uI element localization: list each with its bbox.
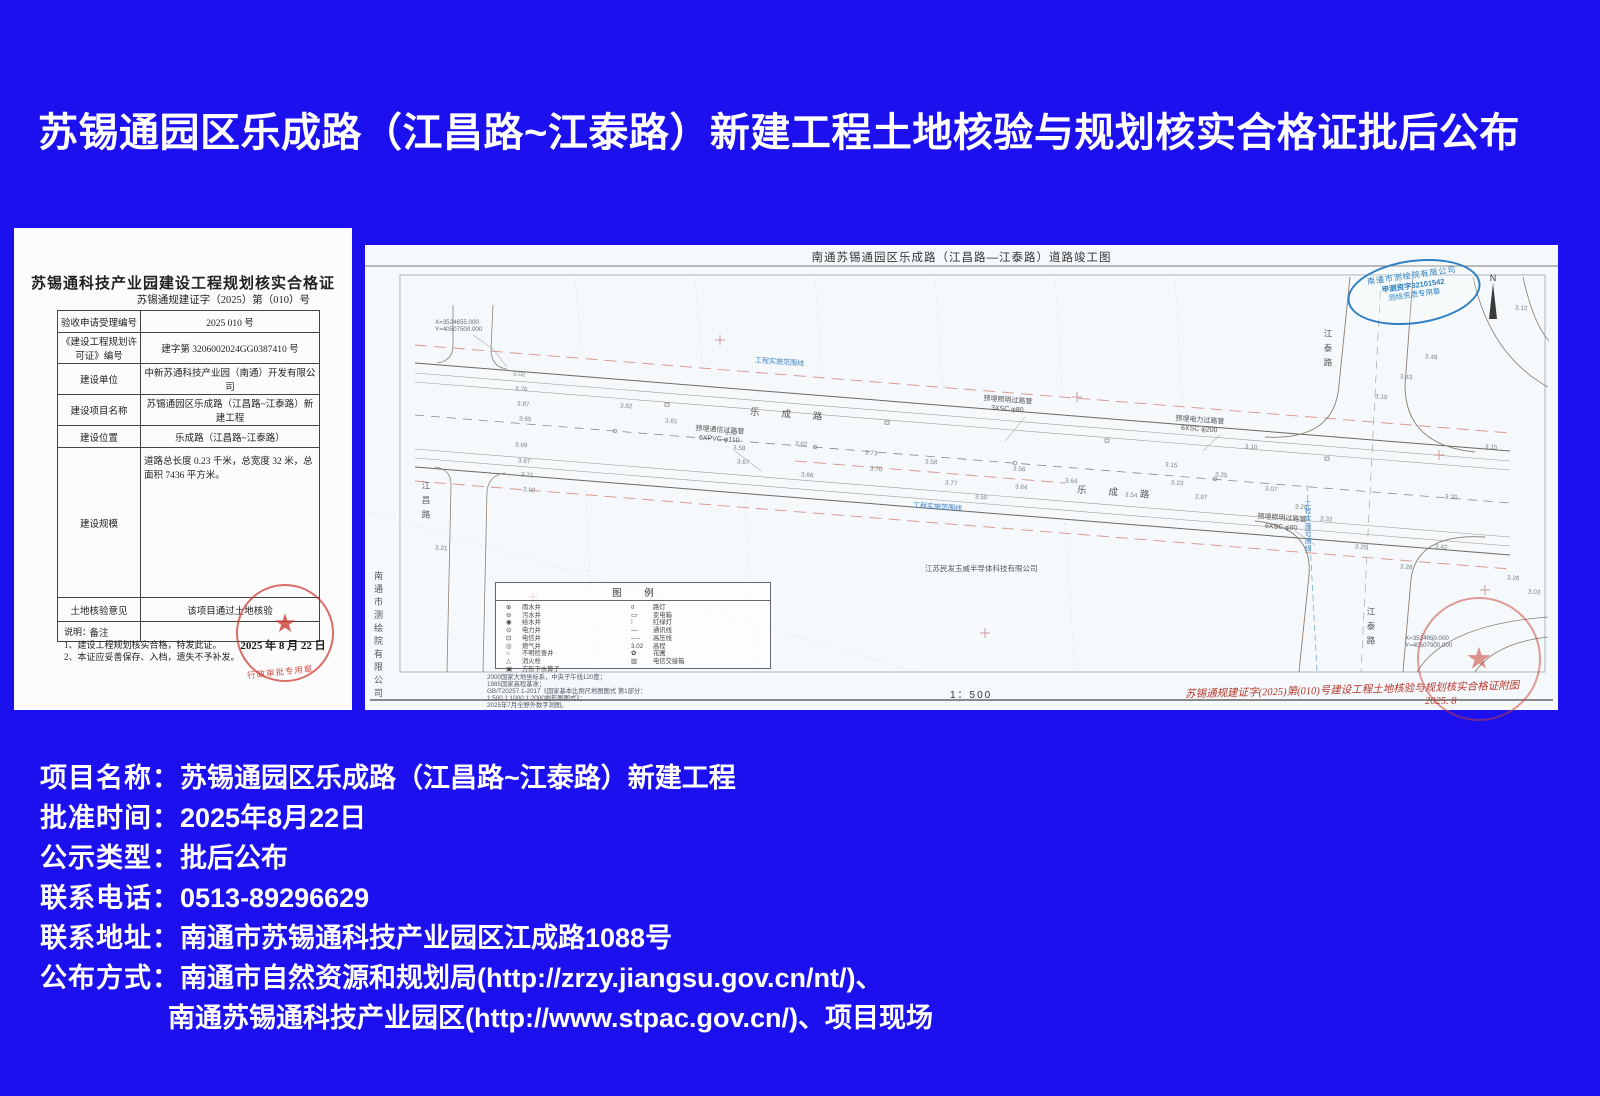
legend-symbol: ○ [506, 650, 522, 658]
announcement-line-label: 批准时间： [40, 803, 180, 833]
spot-elevation: 3.32 [1320, 516, 1333, 524]
legend-symbol [631, 666, 653, 674]
spot-elevation: 3.15 [1485, 444, 1498, 452]
map-legend: 图 例 ⊕雨水井¤路灯⊖污水井▭变电箱◉给水井⁞红绿灯⊙电力井—通讯线⊡电信井–… [495, 582, 771, 669]
announcement-line-label: 公布方式： [40, 963, 180, 993]
spot-elevation: 3.56 [1013, 466, 1026, 474]
announcement-line: 批准时间：2025年8月22日 [40, 798, 933, 838]
road-label-jiangchang: 江昌路 [420, 481, 432, 525]
certificate-row-label: 建设项目名称 [58, 395, 141, 426]
spot-elevation: 3.71 [521, 472, 534, 480]
spot-elevation: 3.65 [519, 416, 532, 424]
announcement-line: 公示类型：批后公布 [40, 838, 933, 878]
certificate-row: 建设项目名称苏锡通园区乐成路（江昌路~江泰路）新建工程 [58, 395, 320, 426]
spot-elevation: 3.19 [1375, 394, 1388, 402]
announcement-line-value: 南通市自然资源和规划局(http://zrzy.jiangsu.gov.cn/n… [180, 963, 882, 993]
certificate-row: 建设单位中新苏通科技产业园（南通）开发有限公司 [58, 364, 320, 395]
legend-symbol: ▭ [631, 612, 653, 620]
spot-elevation: 3.07 [1265, 486, 1278, 494]
legend-item-label: 通讯线 [653, 627, 762, 635]
certificate-title: 苏锡通科技产业园建设工程规划核实合格证 [14, 272, 352, 293]
pipe-label-power: 预埋电力过路管 6XSC φ200 [1174, 415, 1224, 435]
spot-elevation: 3.64 [1065, 478, 1078, 486]
legend-item-label: 给水井 [522, 619, 631, 627]
certificate-notes-title: 说明： [64, 626, 240, 639]
map-red-annotation-date: 2025. 8 [1425, 696, 1457, 707]
certificate-row-label: 土地核验意见 [58, 598, 141, 622]
spot-elevation: 3.23 [1171, 480, 1184, 488]
legend-item-label: 消火栓 [522, 658, 631, 666]
legend-item-label: 不明检查井 [522, 650, 631, 658]
legend-symbol: ▥ [631, 658, 653, 666]
map-scale: 1：500 [950, 686, 992, 701]
legend-symbol: ⊖ [506, 612, 522, 620]
announcement-line-label: 项目名称： [40, 763, 180, 793]
legend-item-label: 电信交接箱 [653, 658, 762, 666]
announcement-line-value: 苏锡通园区乐成路（江昌路~江泰路）新建工程 [180, 763, 736, 793]
certificate-notes: 说明： 1、建设工程规划核实合格，特发此证。2、本证应妥善保存、入档，遗失不予补… [64, 626, 240, 664]
spot-elevation: 3.21 [435, 545, 448, 553]
announcement-line-value: 2025年8月22日 [180, 803, 366, 833]
spot-elevation: 3.02 [513, 371, 526, 379]
spot-elevation: 3.03 [1528, 589, 1541, 597]
road-label-jiangtai-1: 江泰路 [1322, 329, 1334, 373]
spot-elevation: 3.26 [1295, 504, 1308, 512]
certificate-row-label: 验收申请受理编号 [58, 311, 141, 333]
announcement-line: 项目名称：苏锡通园区乐成路（江昌路~江泰路）新建工程 [40, 758, 933, 798]
spot-elevation: 3.25 [1215, 472, 1228, 480]
announcement-line: 南通苏锡通科技产业园区(http://www.stpac.gov.cn/)、项目… [40, 998, 933, 1038]
certificate-row: 验收申请受理编号2025 010 号 [58, 311, 320, 333]
announcement-line-label: 公示类型： [40, 843, 180, 873]
spot-elevation: 3.10 [1245, 444, 1258, 452]
road-label-jiangtai-2: 江泰路 [1365, 607, 1377, 651]
spot-elevation: 3.43 [1400, 374, 1413, 382]
road-completion-map: 南通苏锡通园区乐成路（江昌路—江泰路）道路竣工图 [365, 245, 1558, 710]
announcement-line-label: 联系地址： [40, 923, 180, 953]
legend-symbol: ⁞ [631, 619, 653, 627]
certificate-row-label: 建设规模 [58, 448, 141, 598]
legend-symbol: — [631, 627, 653, 635]
spot-elevation: 3.73 [865, 450, 878, 458]
page-title: 苏锡通园区乐成路（江昌路~江泰路）新建工程土地核验与规划核实合格证批后公布 [38, 100, 1578, 158]
spot-elevation: 3.58 [733, 445, 746, 453]
certificate-row-value: 2025 010 号 [141, 311, 320, 333]
stamp-star-icon: ★ [1466, 642, 1493, 677]
spot-elevation: 3.12 [1515, 305, 1528, 313]
announcement-line: 联系地址：南通市苏锡通科技产业园区江成路1088号 [40, 918, 933, 958]
certificate-row-label: 建设单位 [58, 364, 141, 395]
legend-title: 图 例 [496, 583, 770, 601]
surveyor-company-vertical: 南通市测绘院有限公司 [372, 571, 385, 701]
spot-elevation: 3.67 [737, 459, 750, 467]
legend-item-label: 花圃 [653, 650, 762, 658]
spot-elevation: 3.67 [518, 458, 531, 466]
spot-elevation: 2.97 [1195, 494, 1208, 502]
legend-item-label: 高压线 [653, 635, 762, 643]
spot-elevation: 3.64 [1015, 484, 1028, 492]
spot-elevation: 3.92 [523, 487, 536, 495]
legend-item-label: 电信井 [522, 635, 631, 643]
legend-symbol: ✿ [631, 650, 653, 658]
legend-symbol: 3.02 [631, 643, 653, 651]
pipe-label-lighting-2: 预埋照明过路管 6XSC φ80 [1256, 513, 1306, 533]
certificate-row-value: 道路总长度 0.23 千米，总宽度 32 米，总面积 7436 平方米。 [141, 448, 320, 598]
legend-symbol: –·– [631, 635, 653, 643]
legend-symbol: ⊡ [506, 635, 522, 643]
certificate-row-value: 中新苏通科技产业园（南通）开发有限公司 [141, 364, 320, 395]
map-note-line: 2025年7月全野外数字测图。 [487, 702, 647, 709]
certificate-stamp-date: 2025 年 8 月 22 日 [226, 637, 340, 653]
certificate-doc-number: 苏锡通规建证字（2025）第（010）号 [14, 292, 352, 307]
stamp-star-icon: ★ [273, 609, 296, 639]
legend-symbol: ¤ [631, 604, 653, 612]
announcement-line: 联系电话：0513-89296629 [40, 878, 933, 918]
spot-elevation: 3.15 [1165, 462, 1178, 470]
certificate-panel: 苏锡通科技产业园建设工程规划核实合格证 苏锡通规建证字（2025）第（010）号… [14, 228, 352, 710]
spot-elevation: 3.70 [870, 466, 883, 474]
spot-elevation: 3.26 [1507, 575, 1520, 583]
certificate-row: 《建设工程规划许可证》编号建字第 3206002024GG0387410 号 [58, 333, 320, 364]
spot-elevation: 3.87 [517, 401, 530, 409]
legend-symbol: ◉ [506, 619, 522, 627]
legend-symbol: △ [506, 658, 522, 666]
legend-symbol: ◎ [506, 643, 522, 651]
certificate-row-value: 乐成路（江昌路~江泰路） [141, 426, 320, 448]
spot-elevation: 3.62 [795, 441, 808, 449]
coordinate-top-left: X=3524655.000 Y=40507500.000 [435, 319, 482, 334]
spot-elevation: 3.76 [515, 386, 528, 394]
certificate-row: 建设位置乐成路（江昌路~江泰路） [58, 426, 320, 448]
parcel-company-label: 江苏民发玉威半导体科技有限公司 [925, 563, 1038, 574]
spot-elevation: 3.62 [725, 430, 738, 438]
spot-elevation: 3.20 [1445, 494, 1458, 502]
certificate-note-line: 2、本证应妥善保存、入档，遗失不予补发。 [64, 651, 240, 664]
spot-elevation: 3.25 [1355, 544, 1368, 552]
spot-elevation: 3.61 [665, 418, 678, 426]
certificate-note-line: 1、建设工程规划核实合格，特发此证。 [64, 639, 240, 652]
announcement-line-value: 南通市苏锡通科技产业园区江成路1088号 [180, 923, 672, 953]
legend-item-label [653, 666, 762, 674]
legend-item-label: 方形下水箅子 [522, 666, 631, 674]
spot-elevation: 3.82 [620, 403, 633, 411]
announcement-line-label: 联系电话： [40, 883, 180, 913]
spot-elevation: 3.69 [515, 442, 528, 450]
pipe-label-lighting-1: 预埋照明过路管 3XSC φ80 [982, 395, 1032, 415]
spot-elevation: 3.48 [1425, 354, 1438, 362]
spot-elevation: 3.66 [801, 472, 814, 480]
certificate-row-label: 《建设工程规划许可证》编号 [58, 333, 141, 364]
map-notes: 2000国家大地坐标系，中央子午线120度；1985国家高程基准；GB/T202… [487, 674, 647, 709]
certificate-row-value: 建字第 3206002024GG0387410 号 [141, 333, 320, 364]
announcement-line-value: 0513-89296629 [180, 883, 369, 913]
spot-elevation: 3.77 [945, 480, 958, 488]
legend-symbol: ▣ [506, 666, 522, 674]
spot-elevation: 3.50 [975, 494, 988, 502]
spot-elevation: 3.54 [1125, 492, 1138, 500]
legend-symbol: ⊙ [506, 627, 522, 635]
spot-elevation: 3.42 [1435, 544, 1448, 552]
spot-elevation: 3.28 [1400, 564, 1413, 572]
legend-item-label: 路灯 [653, 604, 762, 612]
announcement-line: 公布方式：南通市自然资源和规划局(http://zrzy.jiangsu.gov… [40, 958, 933, 998]
certificate-row-label: 建设位置 [58, 426, 141, 448]
legend-item-label: 高程 [653, 643, 762, 651]
announcement-line-value: 南通苏锡通科技产业园区(http://www.stpac.gov.cn/)、项目… [168, 1003, 933, 1033]
announcement-line-value: 批后公布 [180, 843, 288, 873]
announcement-info: 项目名称：苏锡通园区乐成路（江昌路~江泰路）新建工程批准时间：2025年8月22… [40, 758, 933, 1038]
legend-item-label: 雨水井 [522, 604, 631, 612]
certificate-row-value: 苏锡通园区乐成路（江昌路~江泰路）新建工程 [141, 395, 320, 426]
north-arrow-icon: N [1483, 273, 1503, 319]
legend-item-label: 红绿灯 [653, 619, 762, 627]
legend-item-label: 电力井 [522, 627, 631, 635]
certificate-row: 建设规模道路总长度 0.23 千米，总宽度 32 米，总面积 7436 平方米。 [58, 448, 320, 598]
legend-symbol: ⊕ [506, 604, 522, 612]
spot-elevation: 3.58 [925, 459, 938, 467]
